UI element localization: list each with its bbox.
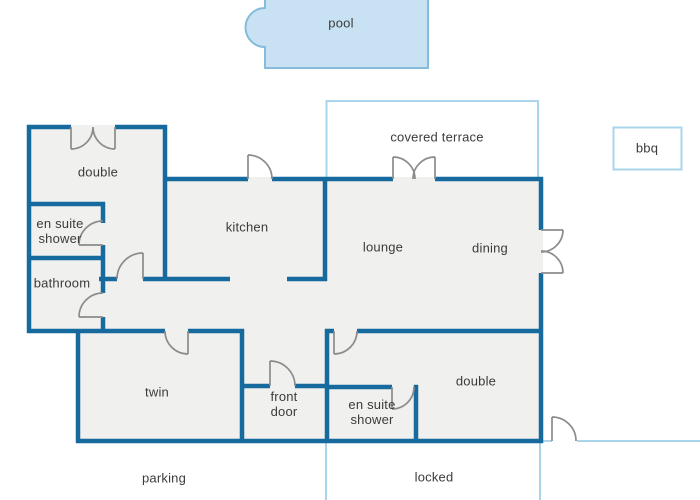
label-parking: parking bbox=[142, 470, 186, 485]
label-pool: pool bbox=[328, 15, 353, 30]
label-lounge: lounge bbox=[363, 239, 403, 254]
label-covered-terrace: covered terrace bbox=[390, 129, 483, 144]
label-front-door: front door bbox=[262, 389, 306, 419]
label-en-suite-shower-1: en suite shower bbox=[29, 216, 91, 246]
label-dining: dining bbox=[472, 240, 508, 255]
label-bathroom: bathroom bbox=[34, 275, 91, 290]
pool-shape bbox=[246, 0, 429, 68]
label-bbq: bbq bbox=[636, 140, 658, 155]
label-bedroom-double-2: double bbox=[456, 373, 496, 388]
label-en-suite-shower-2: en suite shower bbox=[341, 397, 403, 427]
boundary-lines bbox=[326, 441, 700, 500]
label-twin: twin bbox=[145, 384, 169, 399]
floor-plan: pool covered terrace bbq double en suite… bbox=[0, 0, 700, 500]
label-bedroom-double-1: double bbox=[78, 164, 118, 179]
label-locked: locked bbox=[415, 469, 454, 484]
label-kitchen: kitchen bbox=[226, 219, 269, 234]
